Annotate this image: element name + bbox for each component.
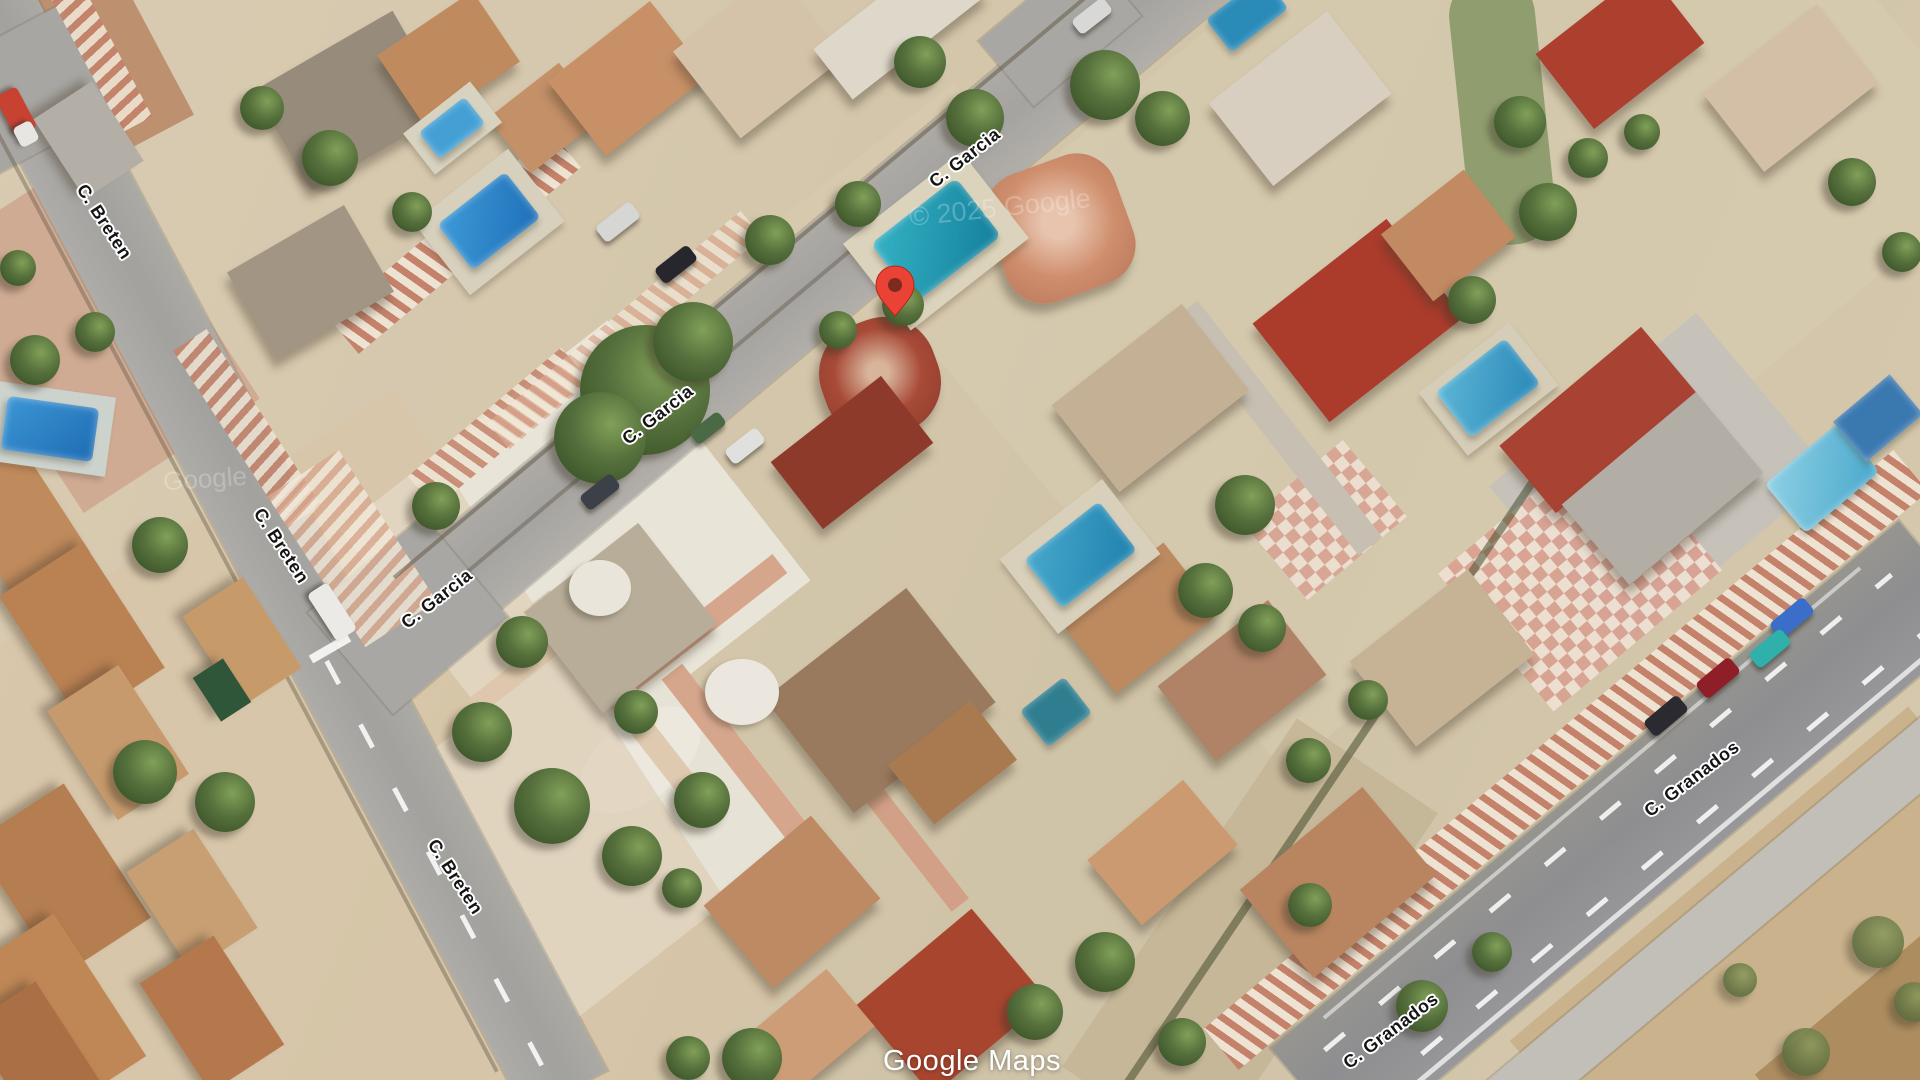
tree [1519,183,1577,241]
tree [1135,91,1190,146]
dome [705,659,779,725]
car [724,427,767,466]
tree [1348,680,1388,720]
location-pin-icon [874,265,916,317]
tree [819,311,857,349]
tree [745,215,795,265]
tree [240,86,284,130]
tree [10,335,60,385]
tree [75,312,115,352]
tree [1472,932,1512,972]
dome [569,560,631,616]
tree [1568,138,1608,178]
tree [1624,114,1660,150]
location-pin[interactable] [874,265,916,317]
tree [1828,158,1876,206]
tree [666,1036,710,1080]
bush [1852,916,1904,968]
map-stage[interactable]: © 2025 GoogleGoogleC. GarciaC. GarciaC. … [0,0,1920,1080]
tree [602,826,662,886]
tree [653,302,733,382]
tree [113,740,177,804]
tree [412,482,460,530]
tree [1075,932,1135,992]
tree [674,772,730,828]
tree [1882,232,1920,272]
tree [132,517,188,573]
tree [1286,738,1331,783]
tree [835,181,881,227]
tree [1238,604,1286,652]
tree [1494,96,1546,148]
tree [392,192,432,232]
tree [1070,50,1140,120]
swimming-pool [1020,677,1092,748]
house [673,0,843,138]
imagery-watermark: Google [162,461,248,498]
tree [1158,1018,1206,1066]
bush [1723,963,1757,997]
google-maps-watermark: Google Maps [883,1045,1061,1078]
palm-tree [722,1028,782,1080]
tree [496,616,548,668]
car [595,201,642,244]
palm-tree [894,36,946,88]
tree [1178,563,1233,618]
tree [514,768,590,844]
tree [195,772,255,832]
tree [662,868,702,908]
tree [302,130,358,186]
tree [1448,276,1496,324]
tree [1288,883,1332,927]
tree [1215,475,1275,535]
tree [1007,984,1063,1040]
tree [0,250,36,286]
tree [614,690,658,734]
tree [452,702,512,762]
bush [1782,1028,1830,1076]
